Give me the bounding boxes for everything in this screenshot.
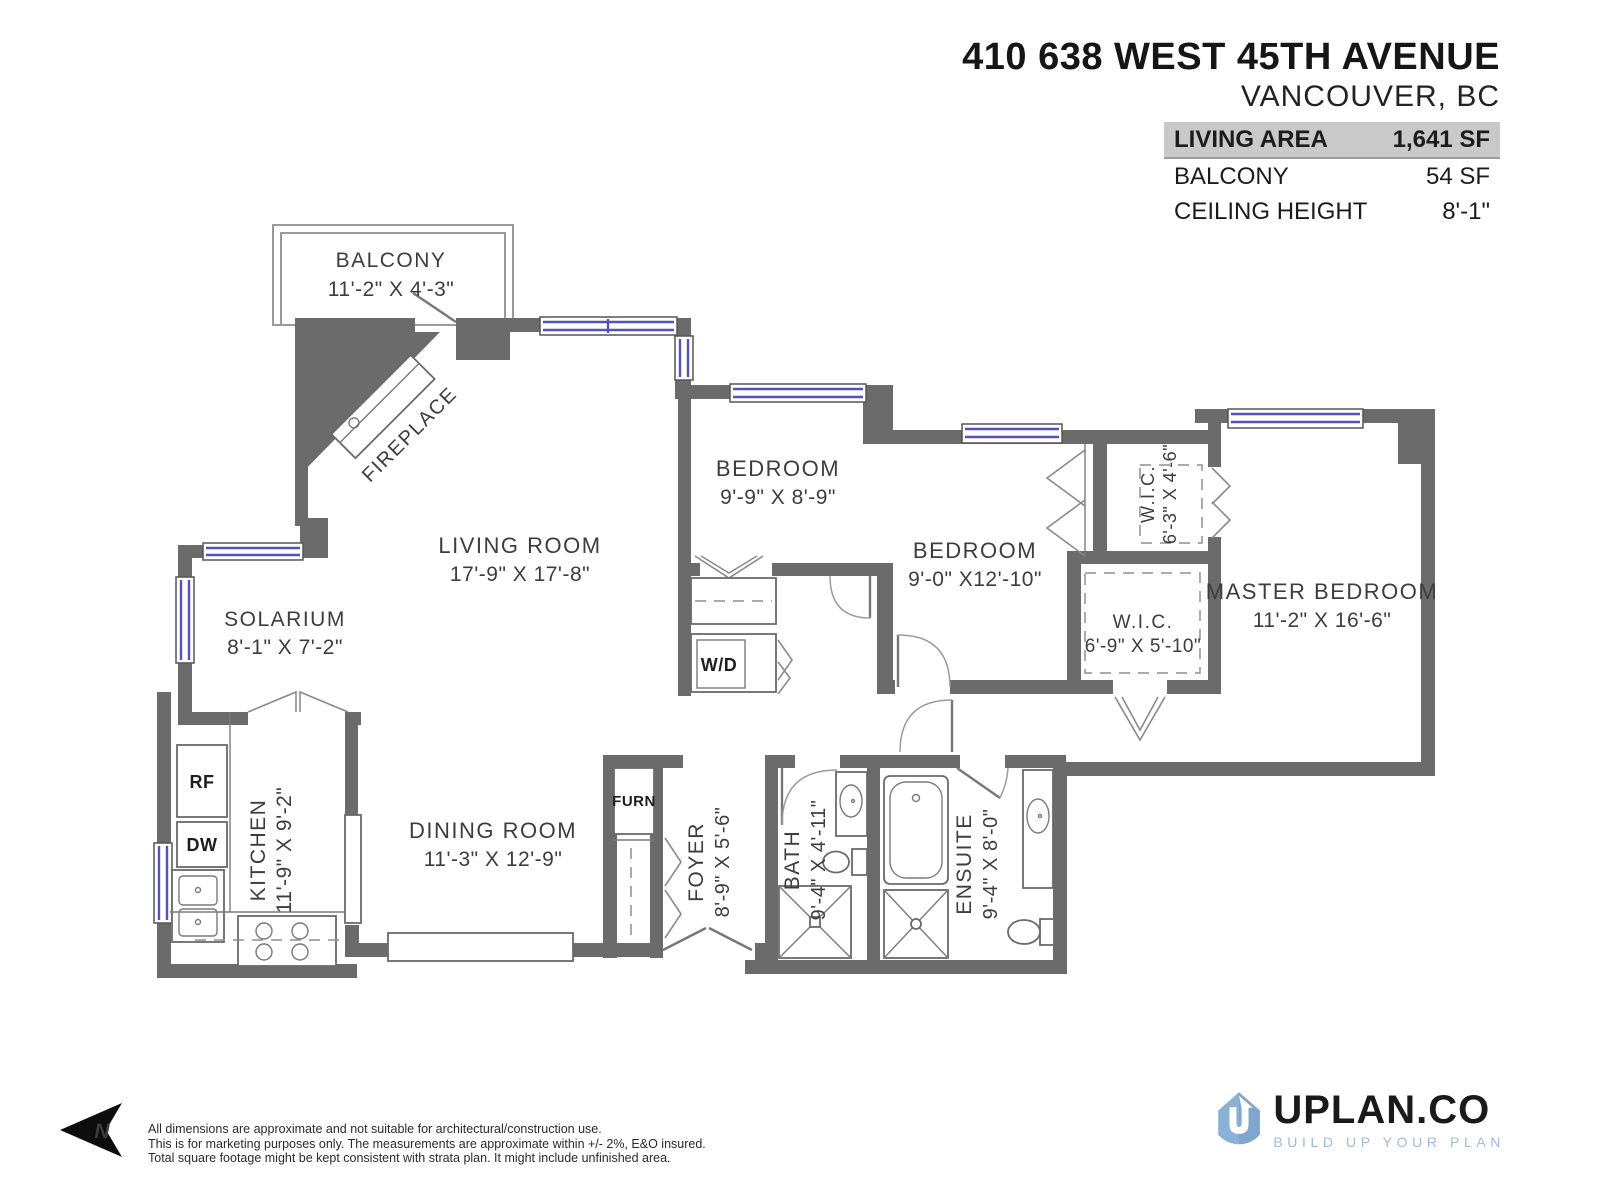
balcony-outline [273,225,513,325]
disclaimer: All dimensions are approximate and not s… [148,1122,706,1166]
dining-ledge [388,933,573,961]
washer-dryer-label: W/D [701,655,738,675]
window-bedroom1-top [730,384,866,402]
furnace-label: FURN [612,793,656,810]
wic-master-dims: 6'-9" X 5'-10" [1085,636,1201,657]
bedroom1-door [830,576,870,618]
balcony-dims: 11'-2" X 4'-3" [328,278,454,301]
disclaimer-line: Total square footage might be kept consi… [148,1151,706,1166]
kitchen-dims: 11'-9" X 9'-2" [273,787,296,913]
bedroom1-dims: 9'-9" X 8'-9" [720,486,836,509]
logo-tagline: BUILD UP YOUR PLAN [1273,1134,1505,1150]
wic-master-name: W.I.C. [1113,612,1174,633]
ensuite-toilet [1008,919,1054,945]
master-name: MASTER BEDROOM [1206,579,1438,604]
floorplan-drawing: FIREPLACE RF DW [0,0,1600,1200]
solarium-dims: 8'-1" X 7'-2" [227,636,343,659]
ensuite-dims: 9'-4" X 8'-0" [980,809,1002,920]
peninsula-counter [345,815,361,923]
bedroom2-door [898,635,950,687]
floorplan-page: 410 638 WEST 45TH AVENUE VANCOUVER, BC L… [0,0,1600,1200]
wic-top-label: W.I.C. 6'-3" X 4'-6" [1138,444,1180,544]
entry-double-doors [663,928,752,950]
wic-top-name: W.I.C. [1138,465,1158,523]
north-arrow-icon: N [56,1100,140,1160]
window-kitchen-left [154,843,172,923]
ensuite-name: ENSUITE [953,813,976,915]
north-label: N [94,1120,110,1143]
kitchen-label: KITCHEN 11'-9" X 9'-2" [247,787,296,913]
bath-name: BATH [781,830,804,890]
living-dims: 17'-9" X 17'-8" [450,563,590,586]
fridge-label: RF [190,772,215,792]
bedroom2-name: BEDROOM [913,538,1037,563]
bedroom2-dims: 9'-0" X12'-10" [908,568,1042,591]
bedroom1-name: BEDROOM [716,456,840,481]
window-master-top [1228,409,1363,428]
dishwasher-label: DW [187,835,218,855]
ensuite-vanity [1023,770,1053,888]
uplan-logo: UPLAN.CO BUILD UP YOUR PLAN [1213,1088,1505,1152]
dining-dims: 11'-3" X 12'-9" [424,848,563,871]
balcony-name: BALCONY [336,249,447,272]
foyer-name: FOYER [685,822,708,902]
hall-door [900,700,952,752]
foyer-label: FOYER 8'-9" X 5'-6" [685,807,734,918]
window-hall-jog [675,336,693,380]
window-solarium-top [203,543,303,560]
window-solarium-left [176,577,194,663]
master-dims: 11'-2" X 16'-6" [1253,609,1392,632]
dining-name: DINING ROOM [409,818,577,843]
disclaimer-line: All dimensions are approximate and not s… [148,1122,706,1137]
ensuite-label: ENSUITE 9'-4" X 8'-0" [953,809,1002,920]
disclaimer-line: This is for marketing purposes only. The… [148,1137,706,1152]
ensuite-shower [884,890,948,958]
ensuite-door [957,768,1008,798]
wic-top-dims: 6'-3" X 4'-6" [1160,444,1180,544]
foyer-dims: 8'-9" X 5'-6" [712,807,734,918]
bath-dims: 9'-4" X 4'-11" [808,800,830,921]
window-living-top [540,317,677,335]
living-name: LIVING ROOM [438,533,601,558]
window-bedroom2-top [962,424,1062,443]
stove [238,916,336,966]
kitchen-name: KITCHEN [247,799,270,902]
solarium-french-doors [248,692,348,712]
bathtub [884,776,948,884]
kitchen-sink [172,870,224,942]
logo-name: UPLAN.CO [1273,1088,1505,1132]
uplan-logo-icon [1213,1088,1265,1152]
solarium-name: SOLARIUM [224,608,346,631]
